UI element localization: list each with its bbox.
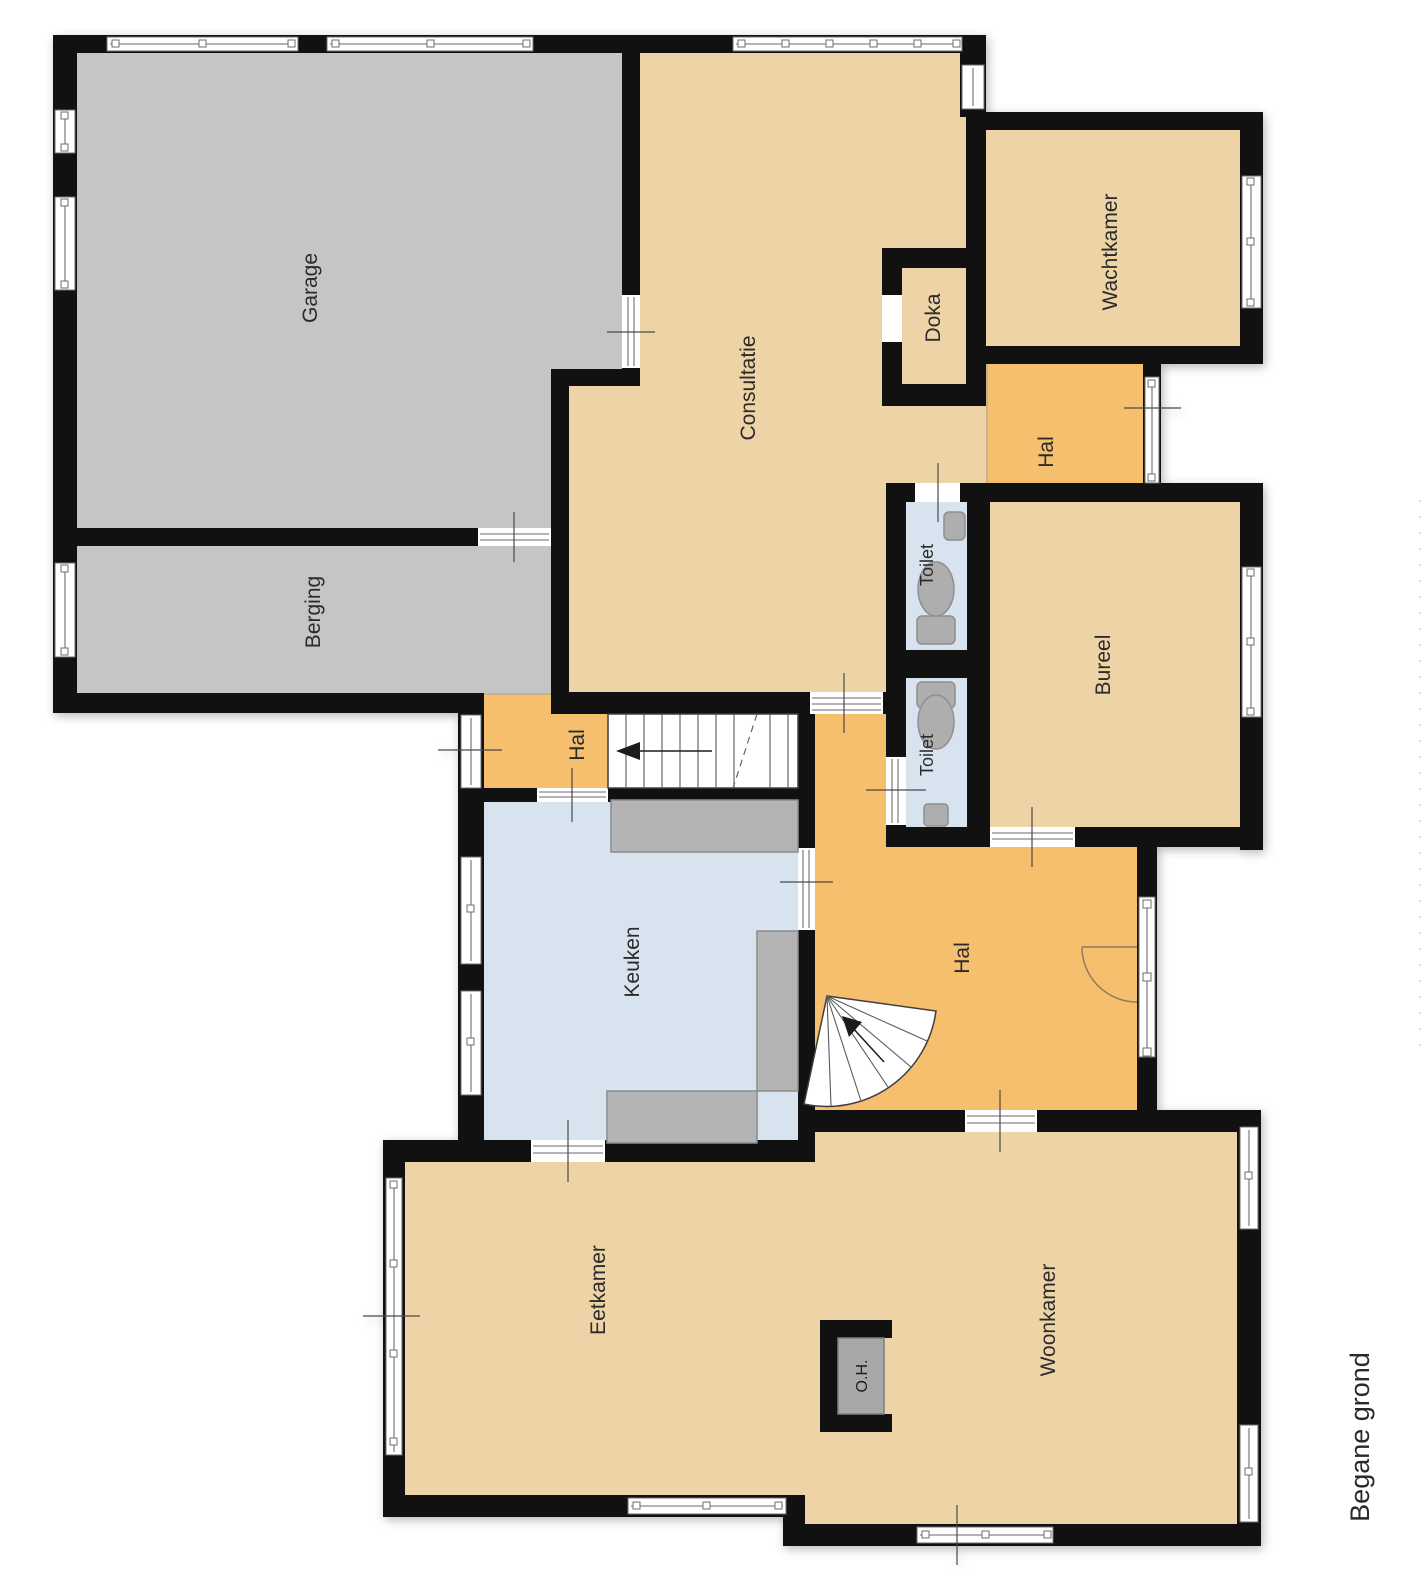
window (917, 1527, 1053, 1543)
window (1242, 567, 1261, 717)
room-label-keuken: Keuken (621, 926, 644, 997)
room-label-hal-boven: Hal (1035, 436, 1058, 468)
counter (607, 1091, 757, 1143)
front-door-panel (1139, 897, 1155, 1057)
sliding-door (810, 692, 883, 714)
room-garage (77, 53, 622, 528)
window (733, 37, 962, 51)
staircase (608, 714, 798, 788)
room-label-berging: Berging (302, 576, 325, 648)
room-label-garage: Garage (299, 253, 322, 323)
counter (757, 931, 798, 1091)
room-label-hal-centraal: Hal (951, 942, 974, 974)
floor-title: Begane grond (1345, 1352, 1375, 1522)
room-label-bureel: Bureel (1092, 635, 1115, 696)
window (55, 110, 75, 153)
room-label-hal-klein: Hal (566, 729, 589, 761)
floor-plan-page: Garage Berging Consultatie Doka Wachtkam… (0, 0, 1425, 1585)
sliding-door (886, 757, 906, 825)
window (461, 991, 481, 1095)
window (1240, 1127, 1258, 1229)
room-label-woonkamer: Woonkamer (1037, 1264, 1060, 1377)
sink-icon (944, 512, 965, 540)
window (107, 37, 298, 51)
room-label-toilet-2: Toilet (917, 734, 937, 776)
room-label-toilet-1: Toilet (917, 544, 937, 586)
counter (611, 800, 798, 852)
floor-plan-drawing: Garage Berging Consultatie Doka Wachtkam… (53, 35, 1263, 1565)
floor-plan: Garage Berging Consultatie Doka Wachtkam… (0, 0, 1425, 1585)
room-bureel (990, 502, 1240, 827)
sliding-door (798, 848, 815, 930)
window (628, 1498, 786, 1514)
toilet-tank (917, 616, 955, 644)
window (962, 65, 984, 109)
sink-icon (924, 804, 948, 826)
room-label-consultatie: Consultatie (737, 335, 760, 440)
door-gap (882, 295, 902, 342)
window (461, 715, 481, 788)
window (461, 857, 481, 964)
window (1240, 1425, 1258, 1522)
room-label-wachtkamer: Wachtkamer (1099, 193, 1122, 310)
room-label-eetkamer: Eetkamer (587, 1245, 610, 1335)
entry-door-panel (1145, 377, 1159, 483)
room-label-doka: Doka (922, 293, 945, 342)
room-hal-boven (986, 364, 1143, 483)
room-label-openhaard: O.H. (854, 1360, 871, 1393)
window (55, 197, 75, 290)
window (55, 563, 75, 657)
window (1242, 176, 1261, 308)
sliding-door (965, 1110, 1037, 1132)
window (327, 37, 533, 51)
